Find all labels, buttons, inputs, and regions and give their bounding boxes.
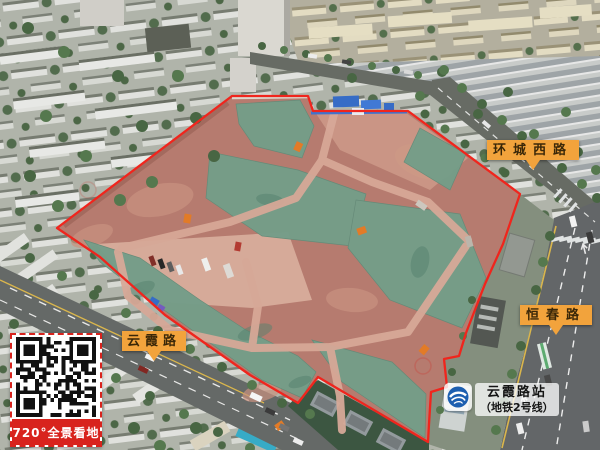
road-label-text: 环城西路 xyxy=(493,143,573,158)
aerial-photo-viewer: 环城西路 恒春路 云霞路 云霞路站 （地铁2号线） 720°全景看地 xyxy=(0,0,600,450)
road-label-text: 恒春路 xyxy=(526,308,586,323)
road-label-text: 云霞路 xyxy=(127,334,181,349)
pointer-arrow-icon xyxy=(526,160,540,170)
qr-panel: 720°全景看地 xyxy=(10,333,102,447)
qr-code xyxy=(16,337,96,417)
pointer-arrow-icon xyxy=(549,325,563,335)
pointer-arrow-icon xyxy=(147,351,161,361)
metro-station-label: 云霞路站 （地铁2号线） xyxy=(444,383,559,416)
road-label-huancheng-west: 环城西路 xyxy=(487,140,579,160)
qr-caption: 720°全景看地 xyxy=(12,419,100,445)
road-label-hengchun: 恒春路 xyxy=(520,305,592,325)
station-name: 云霞路站 xyxy=(480,385,554,401)
metro-logo-icon xyxy=(444,383,472,411)
station-line: （地铁2号线） xyxy=(480,401,554,414)
road-label-yunxia: 云霞路 xyxy=(122,331,186,351)
metro-station-text: 云霞路站 （地铁2号线） xyxy=(475,383,559,416)
